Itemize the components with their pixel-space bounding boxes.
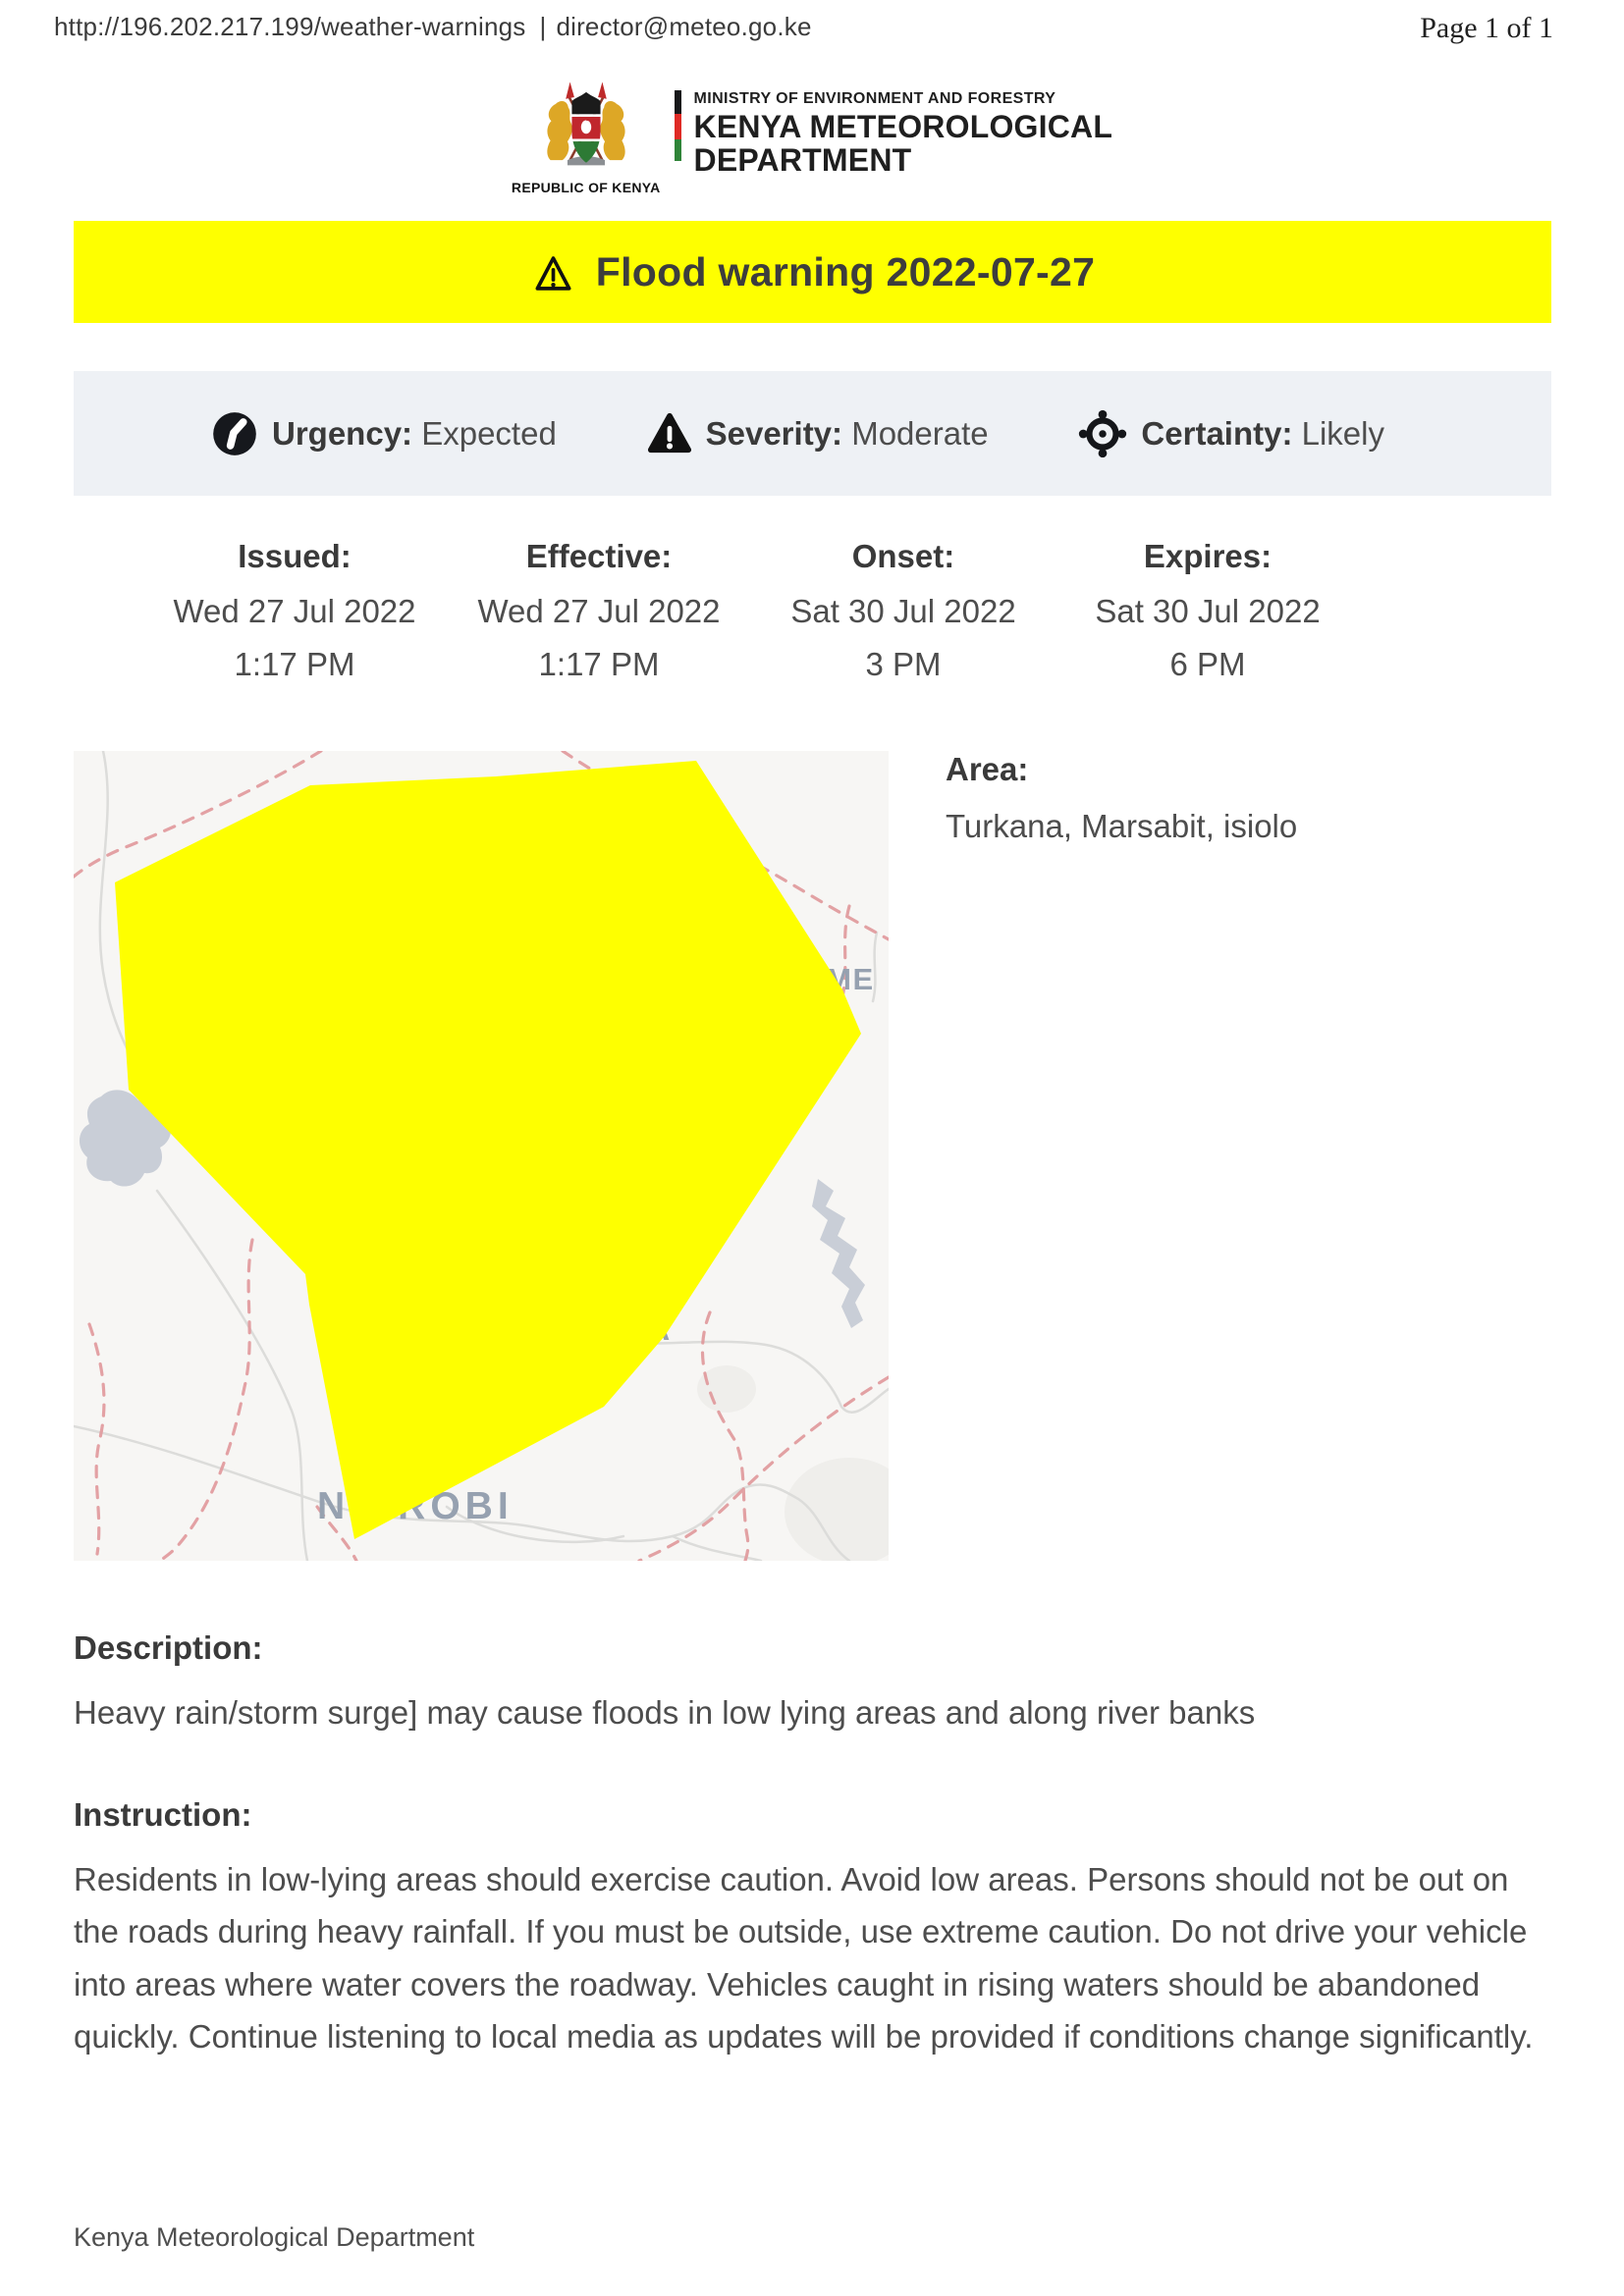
department-logo: REPUBLIC OF KENYA MINISTRY OF ENVIRONMEN… [0,79,1624,195]
effective-column: Effective: Wed 27 Jul 2022 1:17 PM [447,538,751,699]
severity-value: Moderate [851,415,988,452]
certainty-label: Certainty: [1141,415,1292,452]
onset-label: Onset: [751,538,1056,575]
warning-map: EME A NAIROBI [74,751,889,1561]
print-header: http://196.202.217.199/weather-warnings|… [54,12,1553,45]
certainty-item: Certainty: Likely [1078,409,1384,458]
department-name-block: MINISTRY OF ENVIRONMENT AND FORESTRY KEN… [694,79,1113,178]
header-separator: | [539,12,546,41]
severity-item: Severity: Moderate [647,411,989,456]
header-source-line: http://196.202.217.199/weather-warnings|… [54,12,812,42]
onset-time: 3 PM [751,646,1056,683]
ministry-line: MINISTRY OF ENVIRONMENT AND FORESTRY [694,90,1113,108]
contact-email: director@meteo.go.ke [556,12,811,41]
issued-column: Issued: Wed 27 Jul 2022 1:17 PM [142,538,447,699]
warning-triangle-icon [530,250,576,294]
effective-label: Effective: [447,538,751,575]
effective-date: Wed 27 Jul 2022 [447,593,751,630]
map-canvas: EME A NAIROBI [74,751,889,1561]
coat-of-arms-block: REPUBLIC OF KENYA [512,79,661,195]
warning-title: Flood warning 2022-07-27 [596,249,1095,295]
map-section: EME A NAIROBI Area: Turkana, Marsabit, i… [74,751,1551,1561]
description-label: Description: [74,1629,1551,1667]
certainty-target-icon [1078,409,1127,458]
expires-time: 6 PM [1056,646,1360,683]
severity-label: Severity: [706,415,842,452]
description-text: Heavy rain/storm surge] may cause floods… [74,1686,1551,1738]
attribute-bar: Urgency: Expected Severity: Moderate Cer… [74,371,1551,496]
issued-label: Issued: [142,538,447,575]
issued-time: 1:17 PM [142,646,447,683]
urgency-label: Urgency: [272,415,412,452]
instruction-section: Instruction: Residents in low-lying area… [74,1796,1551,2063]
kenya-coat-of-arms-icon [535,79,637,174]
onset-column: Onset: Sat 30 Jul 2022 3 PM [751,538,1056,699]
dates-row: Issued: Wed 27 Jul 2022 1:17 PM Effectiv… [142,538,1360,699]
urgency-item: Urgency: Expected [211,410,557,457]
crest-caption: REPUBLIC OF KENYA [512,180,661,195]
expires-label: Expires: [1056,538,1360,575]
tricolor-red [675,114,681,139]
area-block: Area: Turkana, Marsabit, isiolo [946,751,1297,845]
page-number: Page 1 of 1 [1420,12,1553,45]
urgency-clock-icon [211,410,258,457]
org-name-line1: KENYA METEOROLOGICAL [694,111,1113,144]
effective-time: 1:17 PM [447,646,751,683]
onset-date: Sat 30 Jul 2022 [751,593,1056,630]
weather-warning-page: http://196.202.217.199/weather-warnings|… [0,0,1624,2296]
page-footer: Kenya Meteorological Department [74,2222,474,2253]
certainty-value: Likely [1302,415,1384,452]
urgency-value: Expected [421,415,557,452]
flag-tricolor-bar [675,90,681,161]
description-section: Description: Heavy rain/storm surge] may… [74,1629,1551,1738]
expires-column: Expires: Sat 30 Jul 2022 6 PM [1056,538,1360,699]
warning-banner: Flood warning 2022-07-27 [74,221,1551,323]
severity-triangle-icon [647,411,692,456]
instruction-label: Instruction: [74,1796,1551,1834]
instruction-text: Residents in low-lying areas should exer… [74,1853,1551,2063]
area-label: Area: [946,751,1297,788]
area-value: Turkana, Marsabit, isiolo [946,808,1297,845]
expires-date: Sat 30 Jul 2022 [1056,593,1360,630]
issued-date: Wed 27 Jul 2022 [142,593,447,630]
source-url: http://196.202.217.199/weather-warnings [54,12,525,41]
org-name-line2: DEPARTMENT [694,144,1113,178]
tricolor-green [675,139,681,161]
tricolor-black [675,90,681,114]
